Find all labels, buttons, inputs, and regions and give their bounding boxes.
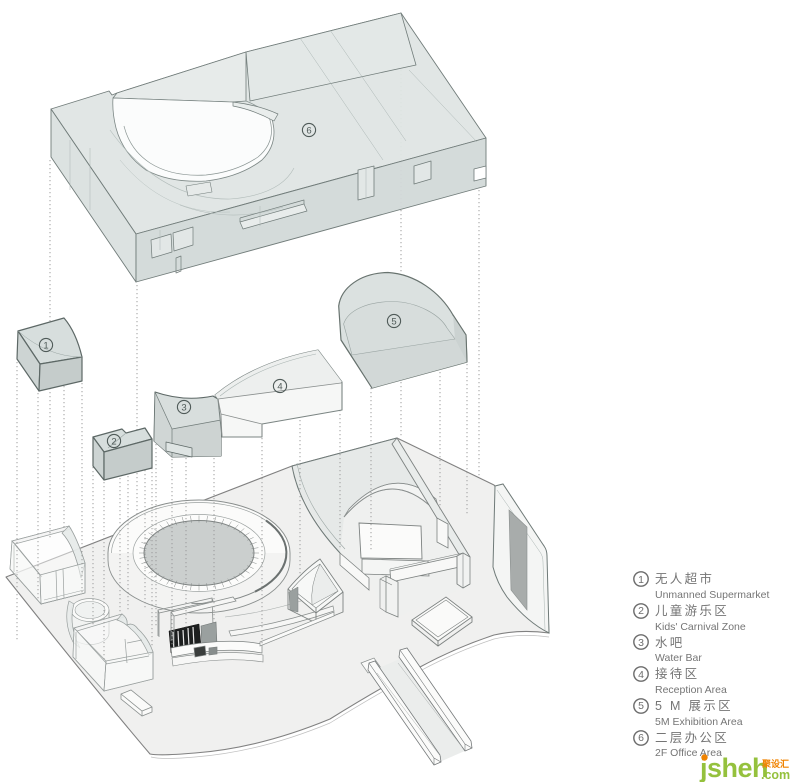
svg-text:6: 6: [306, 125, 311, 136]
svg-text:1: 1: [638, 574, 644, 586]
svg-text:儿童游乐区: 儿童游乐区: [655, 603, 729, 618]
svg-text:2: 2: [638, 605, 644, 617]
svg-text:5: 5: [638, 700, 644, 712]
svg-text:5M Exhibition Area: 5M Exhibition Area: [655, 716, 743, 728]
svg-text:接待区: 接待区: [655, 666, 699, 681]
svg-text:Kids' Carnival Zone: Kids' Carnival Zone: [655, 621, 746, 633]
svg-text:jsheh: jsheh: [699, 753, 768, 782]
svg-text:3: 3: [181, 402, 186, 413]
svg-text:Unmanned Supermarket: Unmanned Supermarket: [655, 589, 769, 601]
svg-text:4: 4: [277, 381, 282, 392]
svg-text:2: 2: [111, 436, 116, 447]
svg-text:.com: .com: [761, 768, 790, 782]
svg-text:Reception Area: Reception Area: [655, 684, 727, 696]
svg-text:Water Bar: Water Bar: [655, 652, 702, 664]
svg-text:3: 3: [638, 637, 644, 649]
svg-text:无人超市: 无人超市: [655, 571, 714, 586]
svg-text:6: 6: [638, 732, 644, 744]
svg-text:二层办公区: 二层办公区: [655, 730, 729, 745]
svg-text:4: 4: [638, 669, 644, 681]
svg-text:1: 1: [43, 340, 48, 351]
svg-text:5: 5: [391, 316, 396, 327]
svg-text:水吧: 水吧: [655, 636, 685, 650]
svg-text:5 M 展示区: 5 M 展示区: [655, 699, 733, 713]
